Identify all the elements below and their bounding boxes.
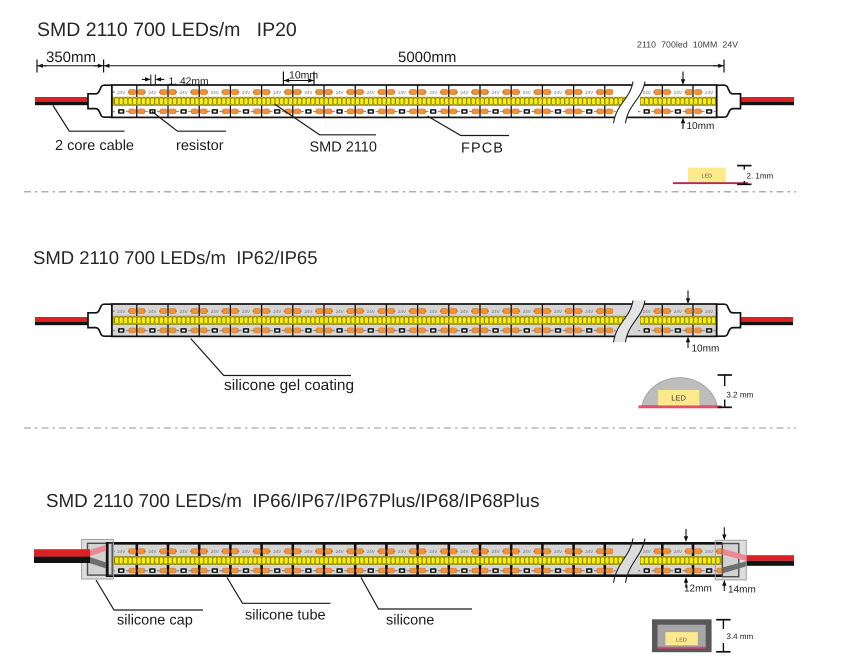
svg-text:24V: 24V — [211, 309, 219, 314]
svg-text:24V: 24V — [554, 309, 562, 314]
svg-text:LED: LED — [671, 394, 686, 403]
svg-text:24V: 24V — [242, 549, 250, 554]
svg-text:SMD 2110 700 LEDs/m IP62/IP65: SMD 2110 700 LEDs/m IP62/IP65 — [33, 247, 318, 268]
svg-text:24V: 24V — [643, 549, 651, 554]
svg-text:24V: 24V — [460, 549, 468, 554]
svg-text:24V: 24V — [242, 90, 250, 95]
svg-text:24V: 24V — [585, 549, 593, 554]
svg-text:5000mm: 5000mm — [398, 49, 456, 66]
svg-text:24V: 24V — [398, 309, 406, 314]
svg-text:24V: 24V — [211, 549, 219, 554]
svg-text:24V: 24V — [117, 549, 125, 554]
svg-text:24V: 24V — [398, 90, 406, 95]
svg-text:3.4 mm: 3.4 mm — [727, 632, 754, 641]
svg-text:silicone cap: silicone cap — [117, 613, 193, 629]
svg-text:24V: 24V — [492, 549, 500, 554]
svg-text:24V: 24V — [117, 90, 125, 95]
svg-text:24V: 24V — [367, 309, 375, 314]
svg-text:12mm: 12mm — [684, 584, 712, 595]
svg-text:24V: 24V — [367, 549, 375, 554]
svg-text:silicone: silicone — [386, 613, 434, 629]
svg-text:24V: 24V — [585, 90, 593, 95]
svg-text:24V: 24V — [674, 90, 682, 95]
svg-text:24V: 24V — [523, 90, 531, 95]
svg-text:24V: 24V — [492, 309, 500, 314]
svg-text:24V: 24V — [148, 549, 156, 554]
svg-text:24V: 24V — [429, 549, 437, 554]
svg-text:24V: 24V — [180, 90, 188, 95]
svg-text:24V: 24V — [705, 549, 713, 554]
svg-text:24V: 24V — [554, 549, 562, 554]
svg-text:2110 700led 10MM 24V: 2110 700led 10MM 24V — [637, 40, 738, 50]
svg-text:24V: 24V — [554, 90, 562, 95]
svg-text:24V: 24V — [460, 90, 468, 95]
svg-text:SMD 2110 700 LEDs/m IP20: SMD 2110 700 LEDs/m IP20 — [37, 19, 297, 41]
svg-text:24V: 24V — [523, 549, 531, 554]
svg-text:24V: 24V — [273, 90, 281, 95]
svg-text:10mm: 10mm — [687, 121, 715, 132]
svg-text:24V: 24V — [180, 309, 188, 314]
svg-text:24V: 24V — [148, 309, 156, 314]
svg-text:2 core cable: 2 core cable — [55, 138, 134, 154]
svg-text:24V: 24V — [336, 90, 344, 95]
svg-text:24V: 24V — [643, 90, 651, 95]
svg-text:24V: 24V — [148, 90, 156, 95]
svg-text:24V: 24V — [336, 549, 344, 554]
svg-text:SMD 2110 700 LEDs/m IP66/IP67: SMD 2110 700 LEDs/m IP66/IP67/IP67Plus/I… — [46, 490, 539, 511]
svg-text:24V: 24V — [585, 309, 593, 314]
svg-text:14mm: 14mm — [728, 585, 756, 596]
svg-text:24V: 24V — [304, 90, 312, 95]
svg-text:24V: 24V — [523, 309, 531, 314]
svg-text:24V: 24V — [429, 90, 437, 95]
svg-text:3.2 mm: 3.2 mm — [726, 391, 753, 400]
svg-text:24V: 24V — [643, 309, 651, 314]
svg-text:LED: LED — [676, 637, 687, 643]
svg-text:24V: 24V — [211, 90, 219, 95]
svg-text:24V: 24V — [336, 309, 344, 314]
svg-text:24V: 24V — [674, 549, 682, 554]
svg-text:24V: 24V — [492, 90, 500, 95]
svg-text:LED: LED — [701, 174, 712, 180]
svg-text:10mm: 10mm — [692, 344, 720, 355]
svg-text:SMD 2110: SMD 2110 — [310, 140, 377, 156]
svg-text:24V: 24V — [180, 549, 188, 554]
svg-text:24V: 24V — [304, 549, 312, 554]
svg-text:24V: 24V — [242, 309, 250, 314]
svg-text:2. 1mm: 2. 1mm — [747, 171, 774, 180]
svg-text:24V: 24V — [460, 309, 468, 314]
svg-text:24V: 24V — [273, 549, 281, 554]
svg-text:24V: 24V — [429, 309, 437, 314]
svg-text:silicone gel coating: silicone gel coating — [224, 377, 354, 394]
svg-text:24V: 24V — [367, 90, 375, 95]
svg-text:FPCB: FPCB — [461, 140, 504, 156]
svg-text:24V: 24V — [117, 309, 125, 314]
svg-text:24V: 24V — [398, 549, 406, 554]
svg-text:24V: 24V — [705, 309, 713, 314]
svg-text:24V: 24V — [273, 309, 281, 314]
svg-text:resistor: resistor — [176, 138, 224, 154]
svg-text:24V: 24V — [674, 309, 682, 314]
svg-text:24V: 24V — [304, 309, 312, 314]
svg-text:silicone tube: silicone tube — [245, 608, 326, 624]
svg-text:24V: 24V — [705, 90, 713, 95]
svg-text:350mm: 350mm — [46, 49, 96, 66]
